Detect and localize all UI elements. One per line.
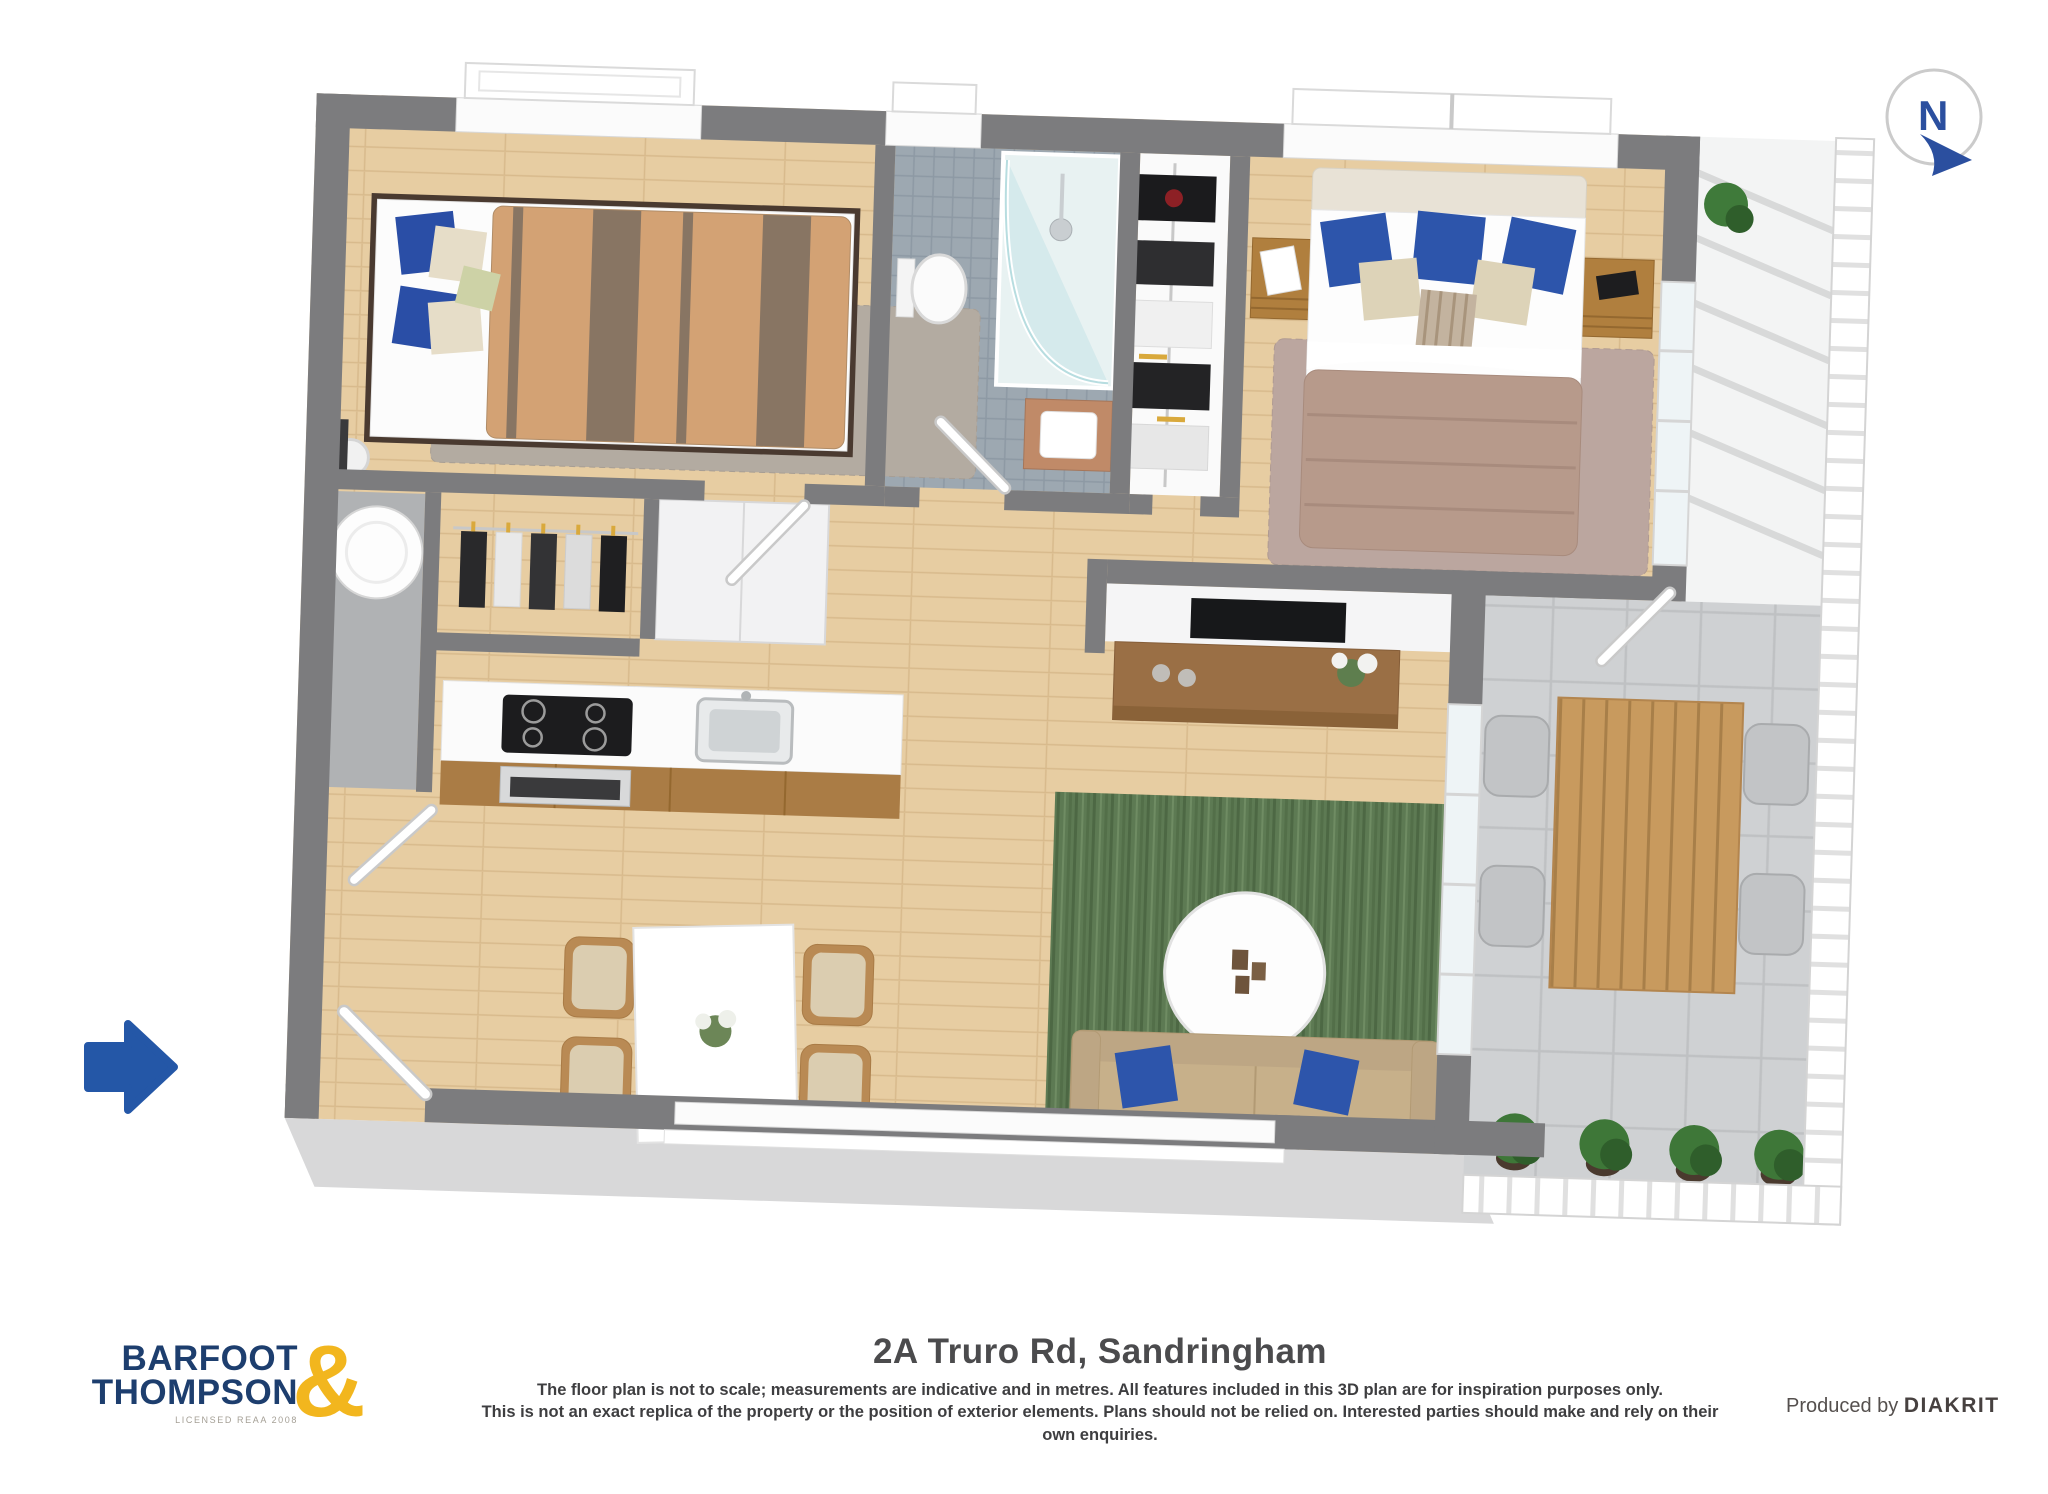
shower-head (1050, 218, 1073, 241)
producer-prefix: Produced by (1786, 1395, 1898, 1417)
compass: N (1876, 60, 1996, 180)
toilet (896, 254, 967, 324)
sofa-pillow (1293, 1049, 1359, 1115)
window-bedroom-2 (456, 63, 703, 140)
dining-chair (802, 944, 874, 1026)
floor-plan-page: N BARFOOT THOMPSON & LICENSED REAA 2008 … (0, 0, 2048, 1494)
title-block: 2A Truro Rd, Sandringham The floor plan … (470, 1332, 1730, 1446)
logo-line2: THOMPSON (80, 1376, 298, 1410)
outdoor-table (1549, 698, 1743, 994)
oven (500, 766, 631, 806)
sofa-pillow (1115, 1045, 1178, 1108)
entry-arrow-icon (78, 1012, 188, 1122)
producer-name: DIAKRIT (1904, 1394, 2000, 1417)
window-master (1283, 89, 1619, 168)
cooktop (501, 694, 633, 756)
dining-chair (563, 936, 635, 1018)
book (1260, 246, 1301, 295)
master-bed (1299, 168, 1589, 557)
pillow-blue (1411, 211, 1486, 286)
kitchen-counter (440, 681, 904, 819)
laundry-closet (322, 491, 425, 790)
sink (696, 690, 793, 764)
vanity (1023, 399, 1112, 472)
disclaimer-line-2: This is not an exact replica of the prop… (470, 1401, 1730, 1446)
page-title: 2A Truro Rd, Sandringham (470, 1332, 1730, 1372)
bed-2 (364, 193, 861, 457)
logo: BARFOOT THOMPSON & LICENSED REAA 2008 (80, 1342, 298, 1425)
logo-line1: BARFOOT (80, 1342, 298, 1376)
window-bathroom (885, 82, 982, 148)
balcony (1682, 137, 1837, 606)
hot-water-cylinder (329, 505, 424, 600)
shower (996, 153, 1120, 389)
disclaimer-line-1: The floor plan is not to scale; measurem… (470, 1379, 1730, 1401)
tv-sideboard (1113, 642, 1400, 729)
compass-north-label: N (1918, 92, 1948, 139)
logo-license: LICENSED REAA 2008 (80, 1416, 298, 1425)
tv (1190, 598, 1346, 643)
producer-credit: Produced by DIAKRIT (1786, 1394, 2000, 1418)
logo-ampersand: & (292, 1330, 366, 1432)
nightstand-right (1582, 258, 1654, 338)
floor-plan (0, 0, 2048, 1494)
